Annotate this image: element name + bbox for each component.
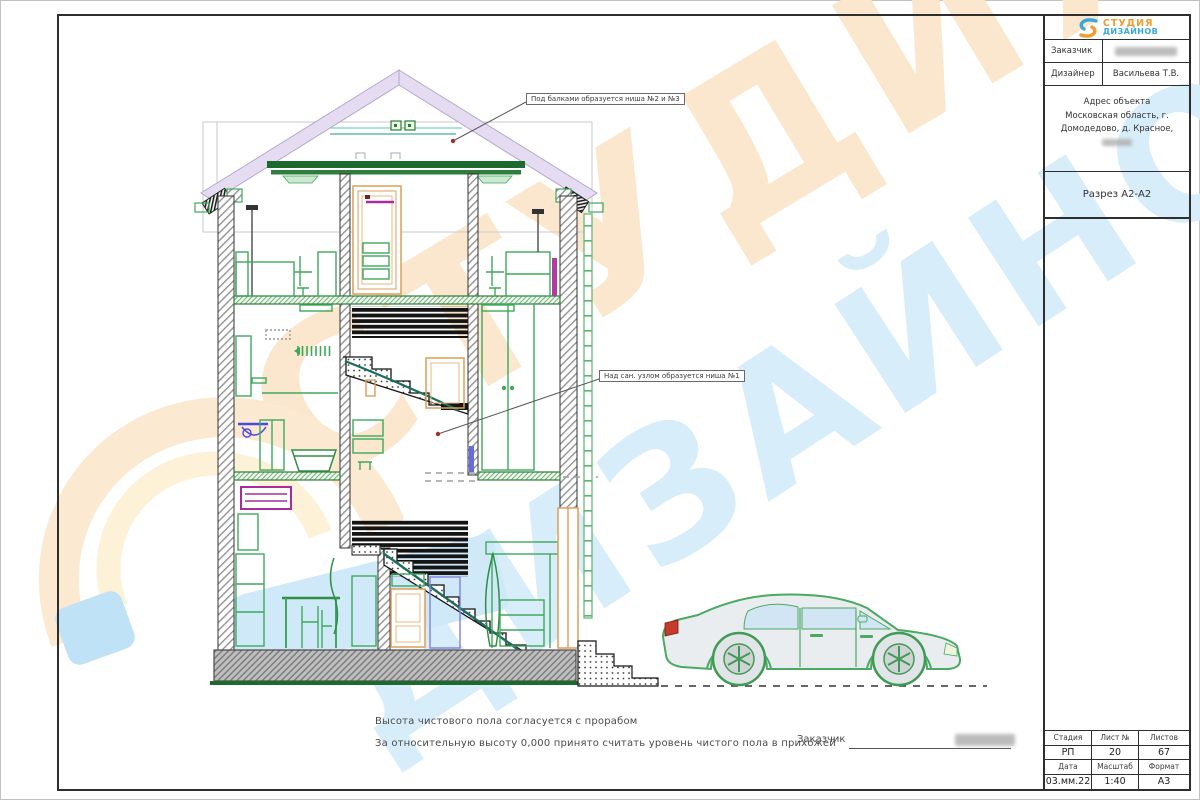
address-line-2: Московская область, г. xyxy=(1045,110,1189,124)
callout-niche-1: Над сан. узлом образуется ниша №1 xyxy=(599,370,745,382)
title-block-empty-cell xyxy=(1045,219,1189,731)
scale-value: 1:40 xyxy=(1092,775,1139,790)
sheet-number-value: 20 xyxy=(1092,746,1139,761)
date-label: Дата xyxy=(1045,760,1092,775)
sheet-number-label: Лист № xyxy=(1092,731,1139,746)
note-floor-height: Высота чистового пола согласуется с прор… xyxy=(375,716,638,727)
sheet-info-table: Стадия Лист № Листов РП 20 67 Дата Масшт… xyxy=(1045,731,1189,789)
client-value-redacted xyxy=(1103,40,1189,62)
object-address: Адрес объекта Московская область, г. Дом… xyxy=(1045,86,1189,172)
section-title: Разрез А2-А2 xyxy=(1045,172,1189,219)
designer-label: Дизайнер xyxy=(1045,63,1103,85)
signature-redacted-name xyxy=(955,734,1015,746)
title-block: СТУДИЯ ДИЗАЙНОВ Заказчик Дизайнер Василь… xyxy=(1043,14,1191,791)
stage-label: Стадия xyxy=(1045,731,1092,746)
logo-word-dizaynov: ДИЗАЙНОВ xyxy=(1103,28,1158,36)
studio-logo: СТУДИЯ ДИЗАЙНОВ xyxy=(1045,16,1189,40)
date-value: 03.мм.22 xyxy=(1045,775,1092,790)
client-row: Заказчик xyxy=(1045,40,1189,63)
client-label: Заказчик xyxy=(1045,40,1103,62)
format-label: Формат xyxy=(1139,760,1189,775)
signature-client-label: Заказчик xyxy=(797,734,845,745)
note-relative-level: За относительную высоту 0,000 принято сч… xyxy=(375,738,836,749)
studio-logo-swoosh-icon xyxy=(1076,18,1100,38)
sheets-total-value: 67 xyxy=(1139,746,1189,761)
sheet-frame xyxy=(57,14,1191,791)
signature-line xyxy=(849,748,1011,749)
drawing-sheet-page: СТУДИЯ ДИЗАЙНОВ xyxy=(0,0,1200,800)
format-value: А3 xyxy=(1139,775,1189,790)
sheets-total-label: Листов xyxy=(1139,731,1189,746)
callout-niche-2-3: Под балками образуется ниша №2 и №3 xyxy=(526,93,685,105)
stage-value: РП xyxy=(1045,746,1092,761)
address-line-3: Домодедово, д. Красное, xyxy=(1045,123,1189,150)
designer-row: Дизайнер Васильева Т.В. xyxy=(1045,63,1189,86)
address-line-1: Адрес объекта xyxy=(1045,96,1189,110)
scale-label: Масштаб xyxy=(1092,760,1139,775)
designer-value: Васильева Т.В. xyxy=(1103,63,1189,85)
